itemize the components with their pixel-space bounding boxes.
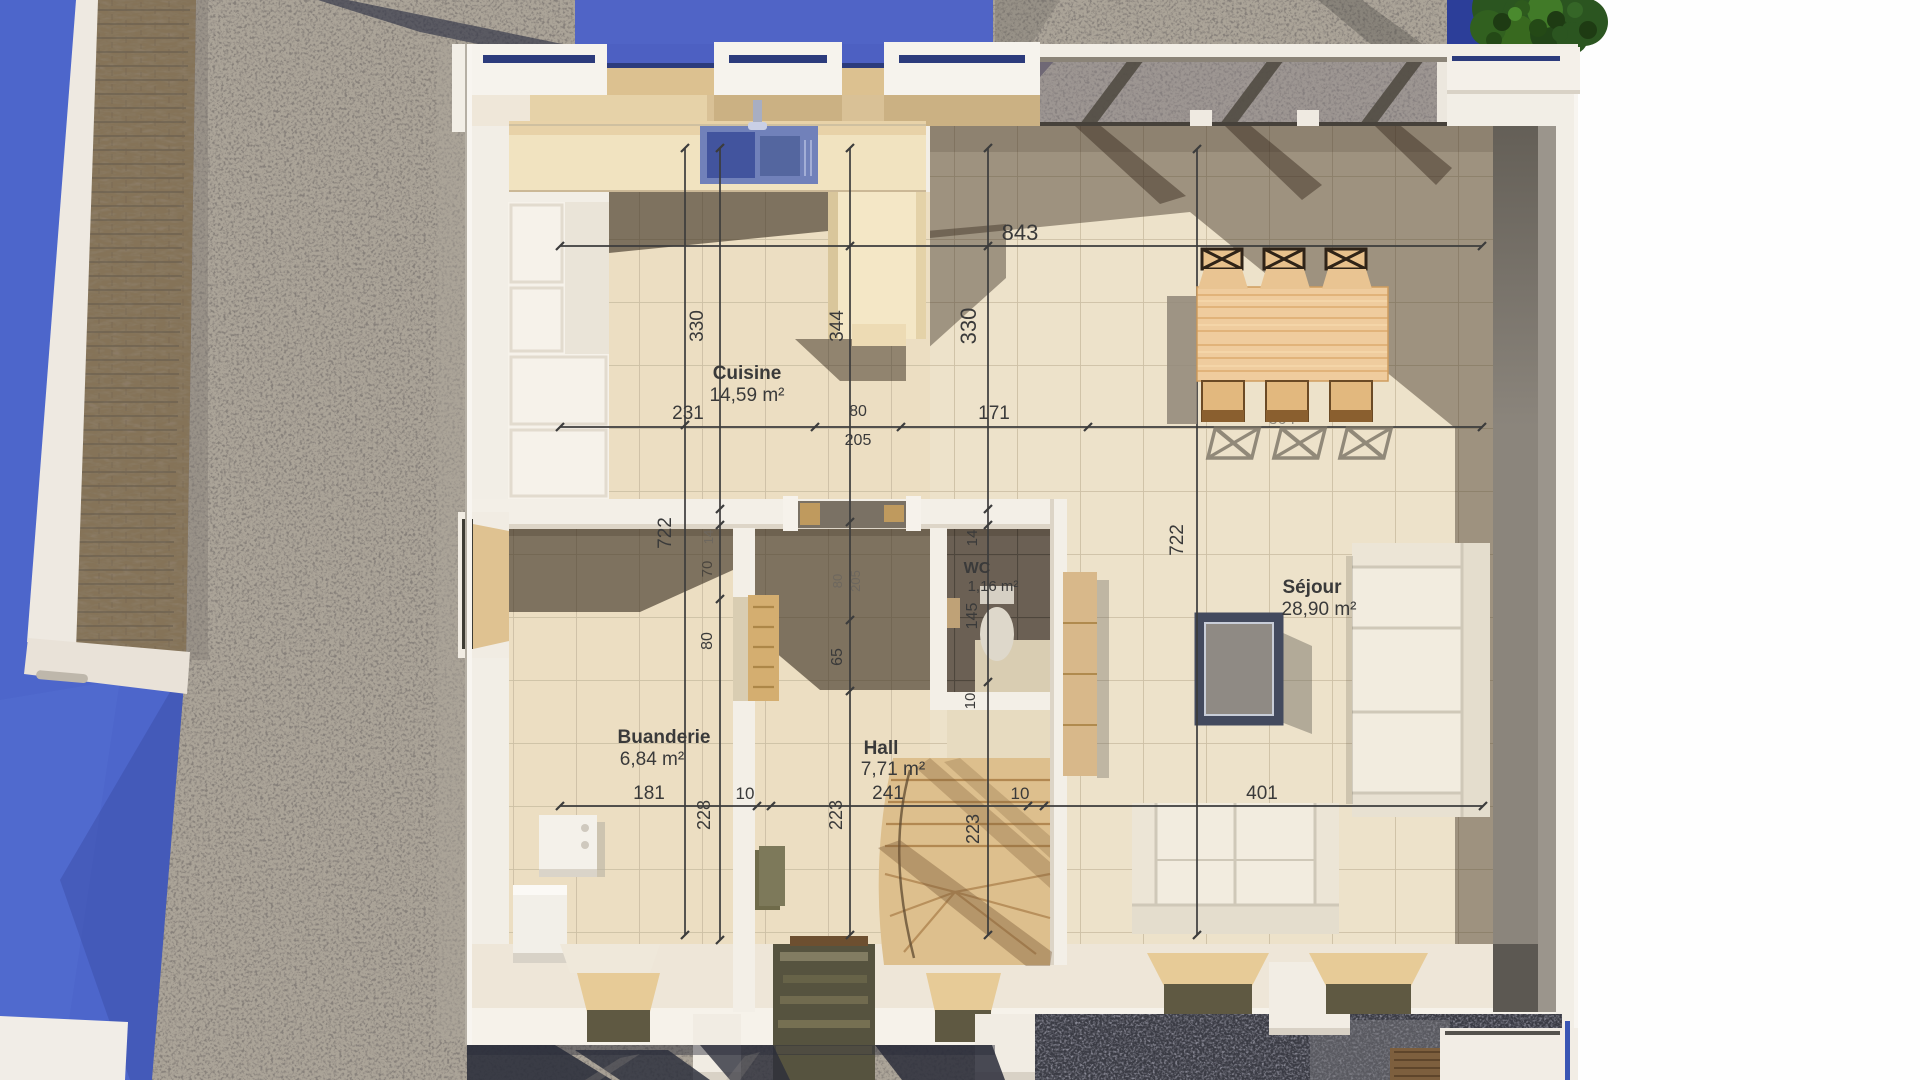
svg-text:241: 241 bbox=[872, 783, 904, 804]
svg-text:205: 205 bbox=[845, 432, 872, 449]
svg-text:10: 10 bbox=[962, 693, 979, 710]
svg-text:10: 10 bbox=[736, 784, 755, 803]
svg-text:205: 205 bbox=[848, 570, 863, 592]
svg-text:1,16 m²: 1,16 m² bbox=[968, 578, 1019, 595]
svg-text:14: 14 bbox=[701, 530, 716, 544]
svg-text:65: 65 bbox=[829, 648, 846, 666]
svg-text:330: 330 bbox=[687, 310, 708, 342]
svg-text:70: 70 bbox=[699, 561, 716, 578]
svg-text:330: 330 bbox=[956, 308, 981, 345]
svg-text:14,59 m²: 14,59 m² bbox=[710, 385, 785, 406]
svg-text:228: 228 bbox=[694, 800, 714, 830]
svg-text:80: 80 bbox=[699, 632, 716, 650]
svg-text:28,90 m²: 28,90 m² bbox=[1282, 599, 1357, 620]
svg-text:10: 10 bbox=[1011, 784, 1030, 803]
svg-text:231: 231 bbox=[672, 403, 704, 424]
svg-text:WC: WC bbox=[964, 560, 991, 577]
svg-text:Buanderie: Buanderie bbox=[618, 727, 711, 748]
svg-text:Séjour: Séjour bbox=[1282, 577, 1342, 598]
svg-text:843: 843 bbox=[1002, 220, 1039, 245]
svg-text:145: 145 bbox=[964, 603, 981, 630]
svg-text:7,71 m²: 7,71 m² bbox=[861, 759, 925, 780]
svg-text:Hall: Hall bbox=[864, 738, 899, 759]
svg-text:80: 80 bbox=[849, 403, 867, 420]
svg-text:344: 344 bbox=[827, 310, 848, 342]
svg-text:722: 722 bbox=[1167, 524, 1188, 556]
svg-text:14: 14 bbox=[964, 530, 981, 547]
svg-text:6,84 m²: 6,84 m² bbox=[620, 749, 684, 770]
svg-text:223: 223 bbox=[963, 814, 983, 844]
svg-text:171: 171 bbox=[978, 403, 1010, 424]
svg-text:Cuisine: Cuisine bbox=[713, 363, 782, 384]
svg-text:80: 80 bbox=[830, 574, 845, 588]
svg-text:181: 181 bbox=[633, 783, 665, 804]
svg-text:722: 722 bbox=[655, 517, 676, 549]
svg-text:223: 223 bbox=[826, 800, 846, 830]
svg-text:401: 401 bbox=[1246, 783, 1278, 804]
